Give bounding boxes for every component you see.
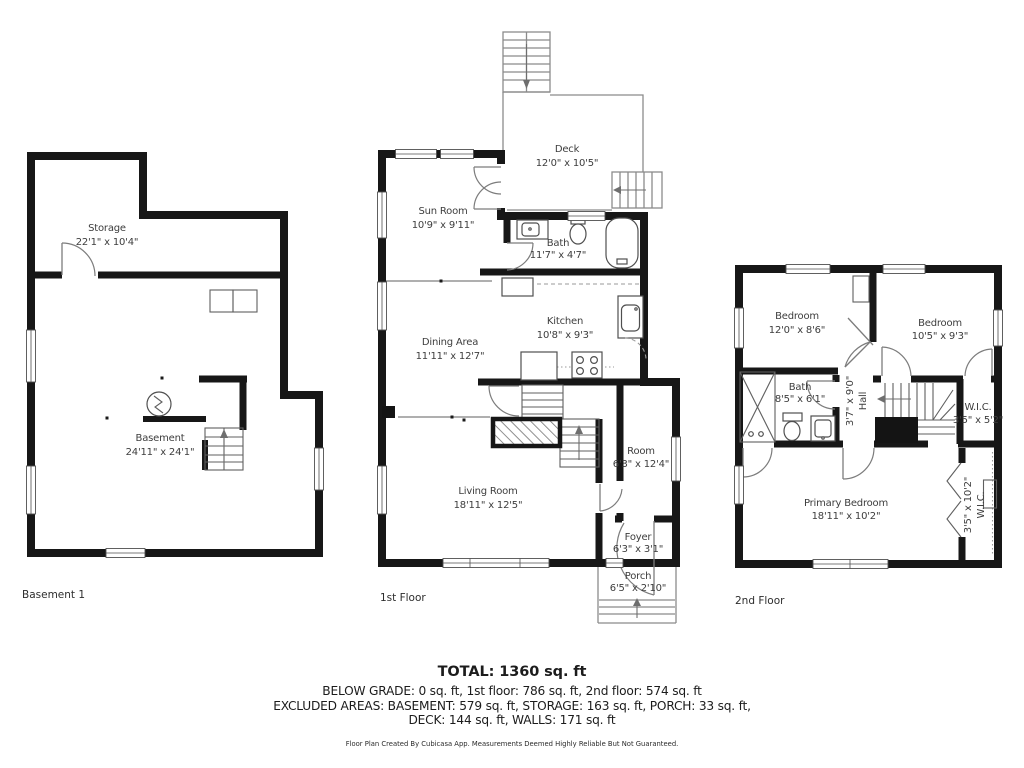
room-dims: 11'11" x 12'7" bbox=[416, 351, 485, 362]
first-floor-plan: Deck 12'0" x 10'5" Sun Room 10'9" x 9'11… bbox=[378, 32, 681, 623]
sink2-icon bbox=[811, 416, 835, 441]
electrical-panel-icon bbox=[147, 392, 171, 416]
area-line-3: DECK: 144 sq. ft, WALLS: 171 sq. ft bbox=[0, 713, 1024, 728]
room-dims: 10'8" x 9'3" bbox=[537, 330, 593, 341]
floor-plan-drawing: Storage 22'1" x 10'4" Basement 24'11" x … bbox=[0, 0, 1024, 768]
basement-plan: Storage 22'1" x 10'4" Basement 24'11" x … bbox=[22, 156, 324, 601]
room-label: Foyer bbox=[625, 532, 653, 543]
room-dims: 6'3" x 3'1" bbox=[613, 544, 663, 555]
closet-icon bbox=[853, 276, 869, 302]
laundry-closet-icon bbox=[740, 372, 775, 442]
floor-label: 2nd Floor bbox=[735, 595, 785, 607]
room-label: Bath bbox=[789, 382, 811, 393]
room-label: Deck bbox=[555, 144, 580, 155]
room-dims: 11'7" x 4'7" bbox=[530, 250, 586, 261]
room-label: Dining Area bbox=[422, 337, 478, 348]
room-door-icon bbox=[600, 484, 622, 511]
room-label: Sun Room bbox=[418, 206, 467, 217]
room-label: Storage bbox=[88, 223, 126, 234]
second-floor-stairs-icon bbox=[875, 383, 955, 443]
disclaimer-text: Floor Plan Created By Cubicasa App. Meas… bbox=[0, 740, 1024, 748]
second-floor-plan: Bedroom 12'0" x 8'6" Bedroom 10'5" x 9'3… bbox=[735, 265, 1004, 608]
room-label: W.I.C. bbox=[964, 402, 991, 413]
room-dims: 6'5" x 2'10" bbox=[610, 583, 666, 594]
bedroom1-door-icon bbox=[845, 318, 873, 367]
room-label: W.I.C. bbox=[976, 491, 987, 518]
room-label: Bedroom bbox=[775, 311, 819, 322]
floor-label: 1st Floor bbox=[380, 592, 426, 604]
room-label: Bedroom bbox=[918, 318, 962, 329]
room-dims: 12'0" x 10'5" bbox=[536, 158, 599, 169]
primary-bedroom-door-icon bbox=[843, 448, 874, 479]
room-label: Kitchen bbox=[547, 316, 583, 327]
room-dims: 18'11" x 10'2" bbox=[812, 511, 881, 522]
room-dims: 10'9" x 9'11" bbox=[412, 220, 475, 231]
room-dims: 3'5" x 10'2" bbox=[963, 477, 974, 533]
room-dims: 3'7" x 9'0" bbox=[845, 376, 856, 426]
bedroom2-door-icon bbox=[882, 347, 911, 376]
bath-sink-icon bbox=[517, 220, 548, 239]
basement-outer-walls bbox=[31, 156, 319, 553]
total-area-text: TOTAL: 1360 sq. ft bbox=[0, 664, 1024, 680]
room-label: Hall bbox=[858, 392, 869, 410]
room-label: Room bbox=[627, 446, 655, 457]
deck-stairs-side-icon bbox=[612, 172, 662, 208]
room-dims: 12'0" x 8'6" bbox=[769, 325, 825, 336]
area-line-2: EXCLUDED AREAS: BASEMENT: 579 sq. ft, ST… bbox=[0, 699, 1024, 714]
room-dims: 6'3" x 12'4" bbox=[613, 459, 669, 470]
closet-door-icon bbox=[743, 448, 772, 477]
wic-door-icon bbox=[965, 349, 992, 376]
room-label: Living Room bbox=[458, 486, 517, 497]
area-line-1: BELOW GRADE: 0 sq. ft, 1st floor: 786 sq… bbox=[0, 684, 1024, 699]
toilet2-icon bbox=[783, 413, 802, 441]
room-label: Primary Bedroom bbox=[804, 498, 888, 509]
bathtub-icon bbox=[606, 218, 638, 268]
toilet-icon bbox=[570, 217, 586, 244]
room-dims: 8'5" x 6'1" bbox=[775, 394, 825, 405]
area-summary: TOTAL: 1360 sq. ft BELOW GRADE: 0 sq. ft… bbox=[0, 664, 1024, 748]
room-dims: 10'5" x 9'3" bbox=[912, 331, 968, 342]
floor-label: Basement 1 bbox=[22, 589, 85, 601]
chimney-icon bbox=[493, 419, 560, 446]
room-label: Bath bbox=[547, 238, 569, 249]
basement-stairs-icon bbox=[205, 428, 243, 470]
room-dims: 24'11" x 24'1" bbox=[126, 447, 195, 458]
room-label: Porch bbox=[625, 571, 652, 582]
deck-outline bbox=[503, 32, 662, 210]
floor-plan-page: Storage 22'1" x 10'4" Basement 24'11" x … bbox=[0, 0, 1024, 768]
deck-stairs-top-icon bbox=[503, 32, 550, 92]
room-dims: 22'1" x 10'4" bbox=[76, 237, 139, 248]
room-dims: 3'5" x 5'2" bbox=[953, 415, 1003, 426]
room-label: Basement bbox=[136, 433, 185, 444]
stove-icon bbox=[572, 352, 602, 378]
basement-appliance-icon bbox=[210, 290, 257, 312]
room-dims: 18'11" x 12'5" bbox=[454, 500, 523, 511]
